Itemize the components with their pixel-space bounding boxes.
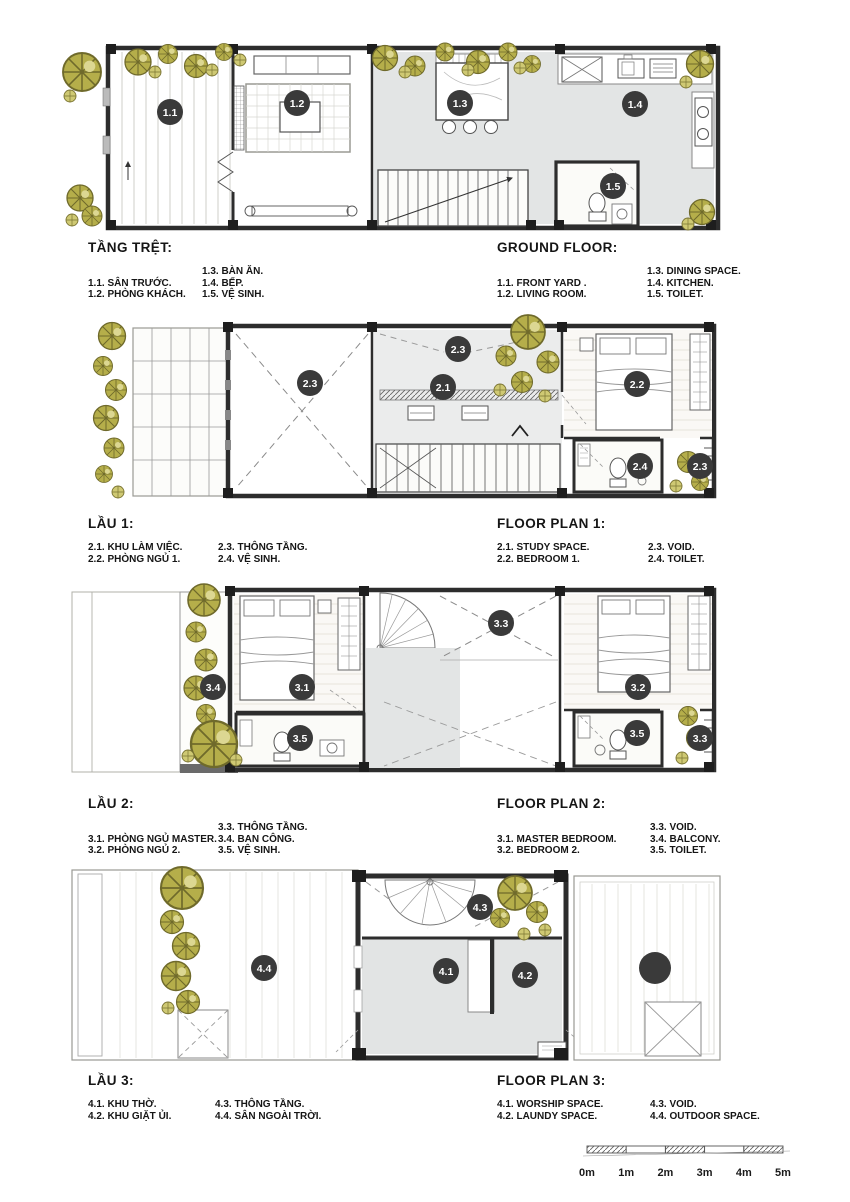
legend-title: FLOOR PLAN 2: xyxy=(497,796,721,811)
legend-item: 1.4. KITCHEN. xyxy=(647,278,741,290)
legend-title: LẦU 2: xyxy=(88,796,307,811)
scale-tick-label: 4m xyxy=(736,1167,752,1179)
legend-item: 2.1. KHU LÀM VIỆC. xyxy=(88,542,218,554)
legend-item: 3.3. VOID. xyxy=(650,822,721,834)
legend-title: FLOOR PLAN 3: xyxy=(497,1073,760,1088)
legend-item: 2.3. THÔNG TẦNG. xyxy=(218,542,307,554)
room-label-text: 2.3 xyxy=(693,461,708,473)
legend-item: 1.4. BẾP. xyxy=(202,278,264,290)
ground-floor-plan: 1.11.21.31.41.5 xyxy=(63,43,718,230)
legend-vi-floor3: LẦU 3: 4.1. KHU THỜ. 4.2. KHU GIẶT ỦI. 4… xyxy=(88,1073,321,1122)
legend-item: 3.1. PHÒNG NGỦ MASTER. xyxy=(88,834,218,846)
room-label-text: 1.4 xyxy=(628,99,643,111)
room-label-text: 1.5 xyxy=(606,181,621,193)
legend-item: 3.4. BALCONY. xyxy=(650,834,721,846)
legend-title: FLOOR PLAN 1: xyxy=(497,516,705,531)
legend-title: GROUND FLOOR: xyxy=(497,240,741,255)
room-label-text: 2.4 xyxy=(633,461,648,473)
legend-vi-floor2: LẦU 2: 3.1. PHÒNG NGỦ MASTER. 3.2. PHÒNG… xyxy=(88,796,307,857)
legend-item: 4.4. SÂN NGOÀI TRỜI. xyxy=(215,1111,321,1123)
room-label-text: 1.2 xyxy=(290,98,305,110)
room-label-text: 4.4 xyxy=(257,963,272,975)
scale-tick-label: 0m xyxy=(579,1167,595,1179)
legend-item: 1.2. LIVING ROOM. xyxy=(497,289,647,301)
filled-dot-marker xyxy=(639,952,671,984)
legend-en-floor1: FLOOR PLAN 1: 2.1. STUDY SPACE. 2.2. BED… xyxy=(497,516,705,565)
room-label-text: 4.1 xyxy=(439,966,454,978)
legend-item: 4.3. THÔNG TẦNG. xyxy=(215,1099,321,1111)
legend-item: 1.1. FRONT YARD . xyxy=(497,278,647,290)
floor-plan-2: 3.43.13.33.23.53.53.3 xyxy=(72,584,714,773)
legend-item: 1.5. VỆ SINH. xyxy=(202,289,264,301)
room-label-text: 3.3 xyxy=(693,733,708,745)
legend-item: 1.3. BÀN ĂN. xyxy=(202,266,264,278)
legend-title: TẦNG TRỆT: xyxy=(88,240,264,255)
room-label-text: 3.2 xyxy=(631,682,646,694)
room-label-text: 3.5 xyxy=(630,728,645,740)
legend-vi-floor1: LẦU 1: 2.1. KHU LÀM VIỆC. 2.2. PHÒNG NGỦ… xyxy=(88,516,307,565)
legend-item: 2.4. VỆ SINH. xyxy=(218,554,307,566)
legend-item: 1.2. PHÒNG KHÁCH. xyxy=(88,289,202,301)
legend-item: 2.3. VOID. xyxy=(648,542,705,554)
legend-item: 2.4. TOILET. xyxy=(648,554,705,566)
legend-item: 3.4. BAN CÔNG. xyxy=(218,834,307,846)
room-label-text: 2.3 xyxy=(451,344,466,356)
legend-item: 2.2. PHÒNG NGỦ 1. xyxy=(88,554,218,566)
scale-tick-label: 2m xyxy=(657,1167,673,1179)
legend-title: LẦU 3: xyxy=(88,1073,321,1088)
legend-item: 4.1. WORSHIP SPACE. xyxy=(497,1099,650,1111)
room-label-text: 4.3 xyxy=(473,902,488,914)
room-label-text: 3.5 xyxy=(293,733,308,745)
legend-en-ground: GROUND FLOOR: 1.1. FRONT YARD . 1.2. LIV… xyxy=(497,240,741,301)
legend-item: 4.1. KHU THỜ. xyxy=(88,1099,215,1111)
floor-plan-3: 4.44.34.14.2 xyxy=(72,867,720,1060)
legend-item: 2.2. BEDROOM 1. xyxy=(497,554,648,566)
legend-item: 2.1. STUDY SPACE. xyxy=(497,542,648,554)
room-label-text: 2.3 xyxy=(303,378,318,390)
room-label-text: 1.1 xyxy=(163,107,178,119)
room-label-text: 2.1 xyxy=(436,382,451,394)
floor-plans-canvas: 1.11.21.31.41.5 xyxy=(0,0,850,1202)
legend-en-floor3: FLOOR PLAN 3: 4.1. WORSHIP SPACE. 4.2. L… xyxy=(497,1073,760,1122)
legend-item: 4.4. OUTDOOR SPACE. xyxy=(650,1111,760,1123)
floor-plan-1: 2.32.32.12.22.42.3 xyxy=(94,315,715,498)
legend-item: 4.2. KHU GIẶT ỦI. xyxy=(88,1111,215,1123)
legend-item: 3.2. PHÒNG NGỦ 2. xyxy=(88,845,218,857)
legend-item: 4.3. VOID. xyxy=(650,1099,760,1111)
legend-item: 1.1. SÂN TRƯỚC. xyxy=(88,278,202,290)
legend-item: 3.5. TOILET. xyxy=(650,845,721,857)
scale-tick-label: 3m xyxy=(697,1167,713,1179)
legend-vi-ground: TẦNG TRỆT: 1.1. SÂN TRƯỚC. 1.2. PHÒNG KH… xyxy=(88,240,264,301)
legend-item: 4.2. LAUNDY SPACE. xyxy=(497,1111,650,1123)
scale-bar: 0m1m2m3m4m5m xyxy=(579,1146,791,1179)
room-label-text: 3.1 xyxy=(295,682,310,694)
legend-en-floor2: FLOOR PLAN 2: 3.1. MASTER BEDROOM. 3.2. … xyxy=(497,796,721,857)
scale-tick-label: 5m xyxy=(775,1167,791,1179)
room-label-text: 2.2 xyxy=(630,379,645,391)
legend-item: 1.5. TOILET. xyxy=(647,289,741,301)
legend-item: 3.3. THÔNG TẦNG. xyxy=(218,822,307,834)
architecture-sheet: 1.11.21.31.41.5 xyxy=(0,0,850,1202)
room-label-text: 3.3 xyxy=(494,618,509,630)
room-label-text: 4.2 xyxy=(518,970,533,982)
legend-title: LẦU 1: xyxy=(88,516,307,531)
legend-item: 3.1. MASTER BEDROOM. xyxy=(497,834,650,846)
room-label-text: 3.4 xyxy=(206,682,221,694)
room-label-text: 1.3 xyxy=(453,98,468,110)
legend-item: 3.5. VỆ SINH. xyxy=(218,845,307,857)
legend-item: 3.2. BEDROOM 2. xyxy=(497,845,650,857)
scale-tick-label: 1m xyxy=(618,1167,634,1179)
legend-item: 1.3. DINING SPACE. xyxy=(647,266,741,278)
